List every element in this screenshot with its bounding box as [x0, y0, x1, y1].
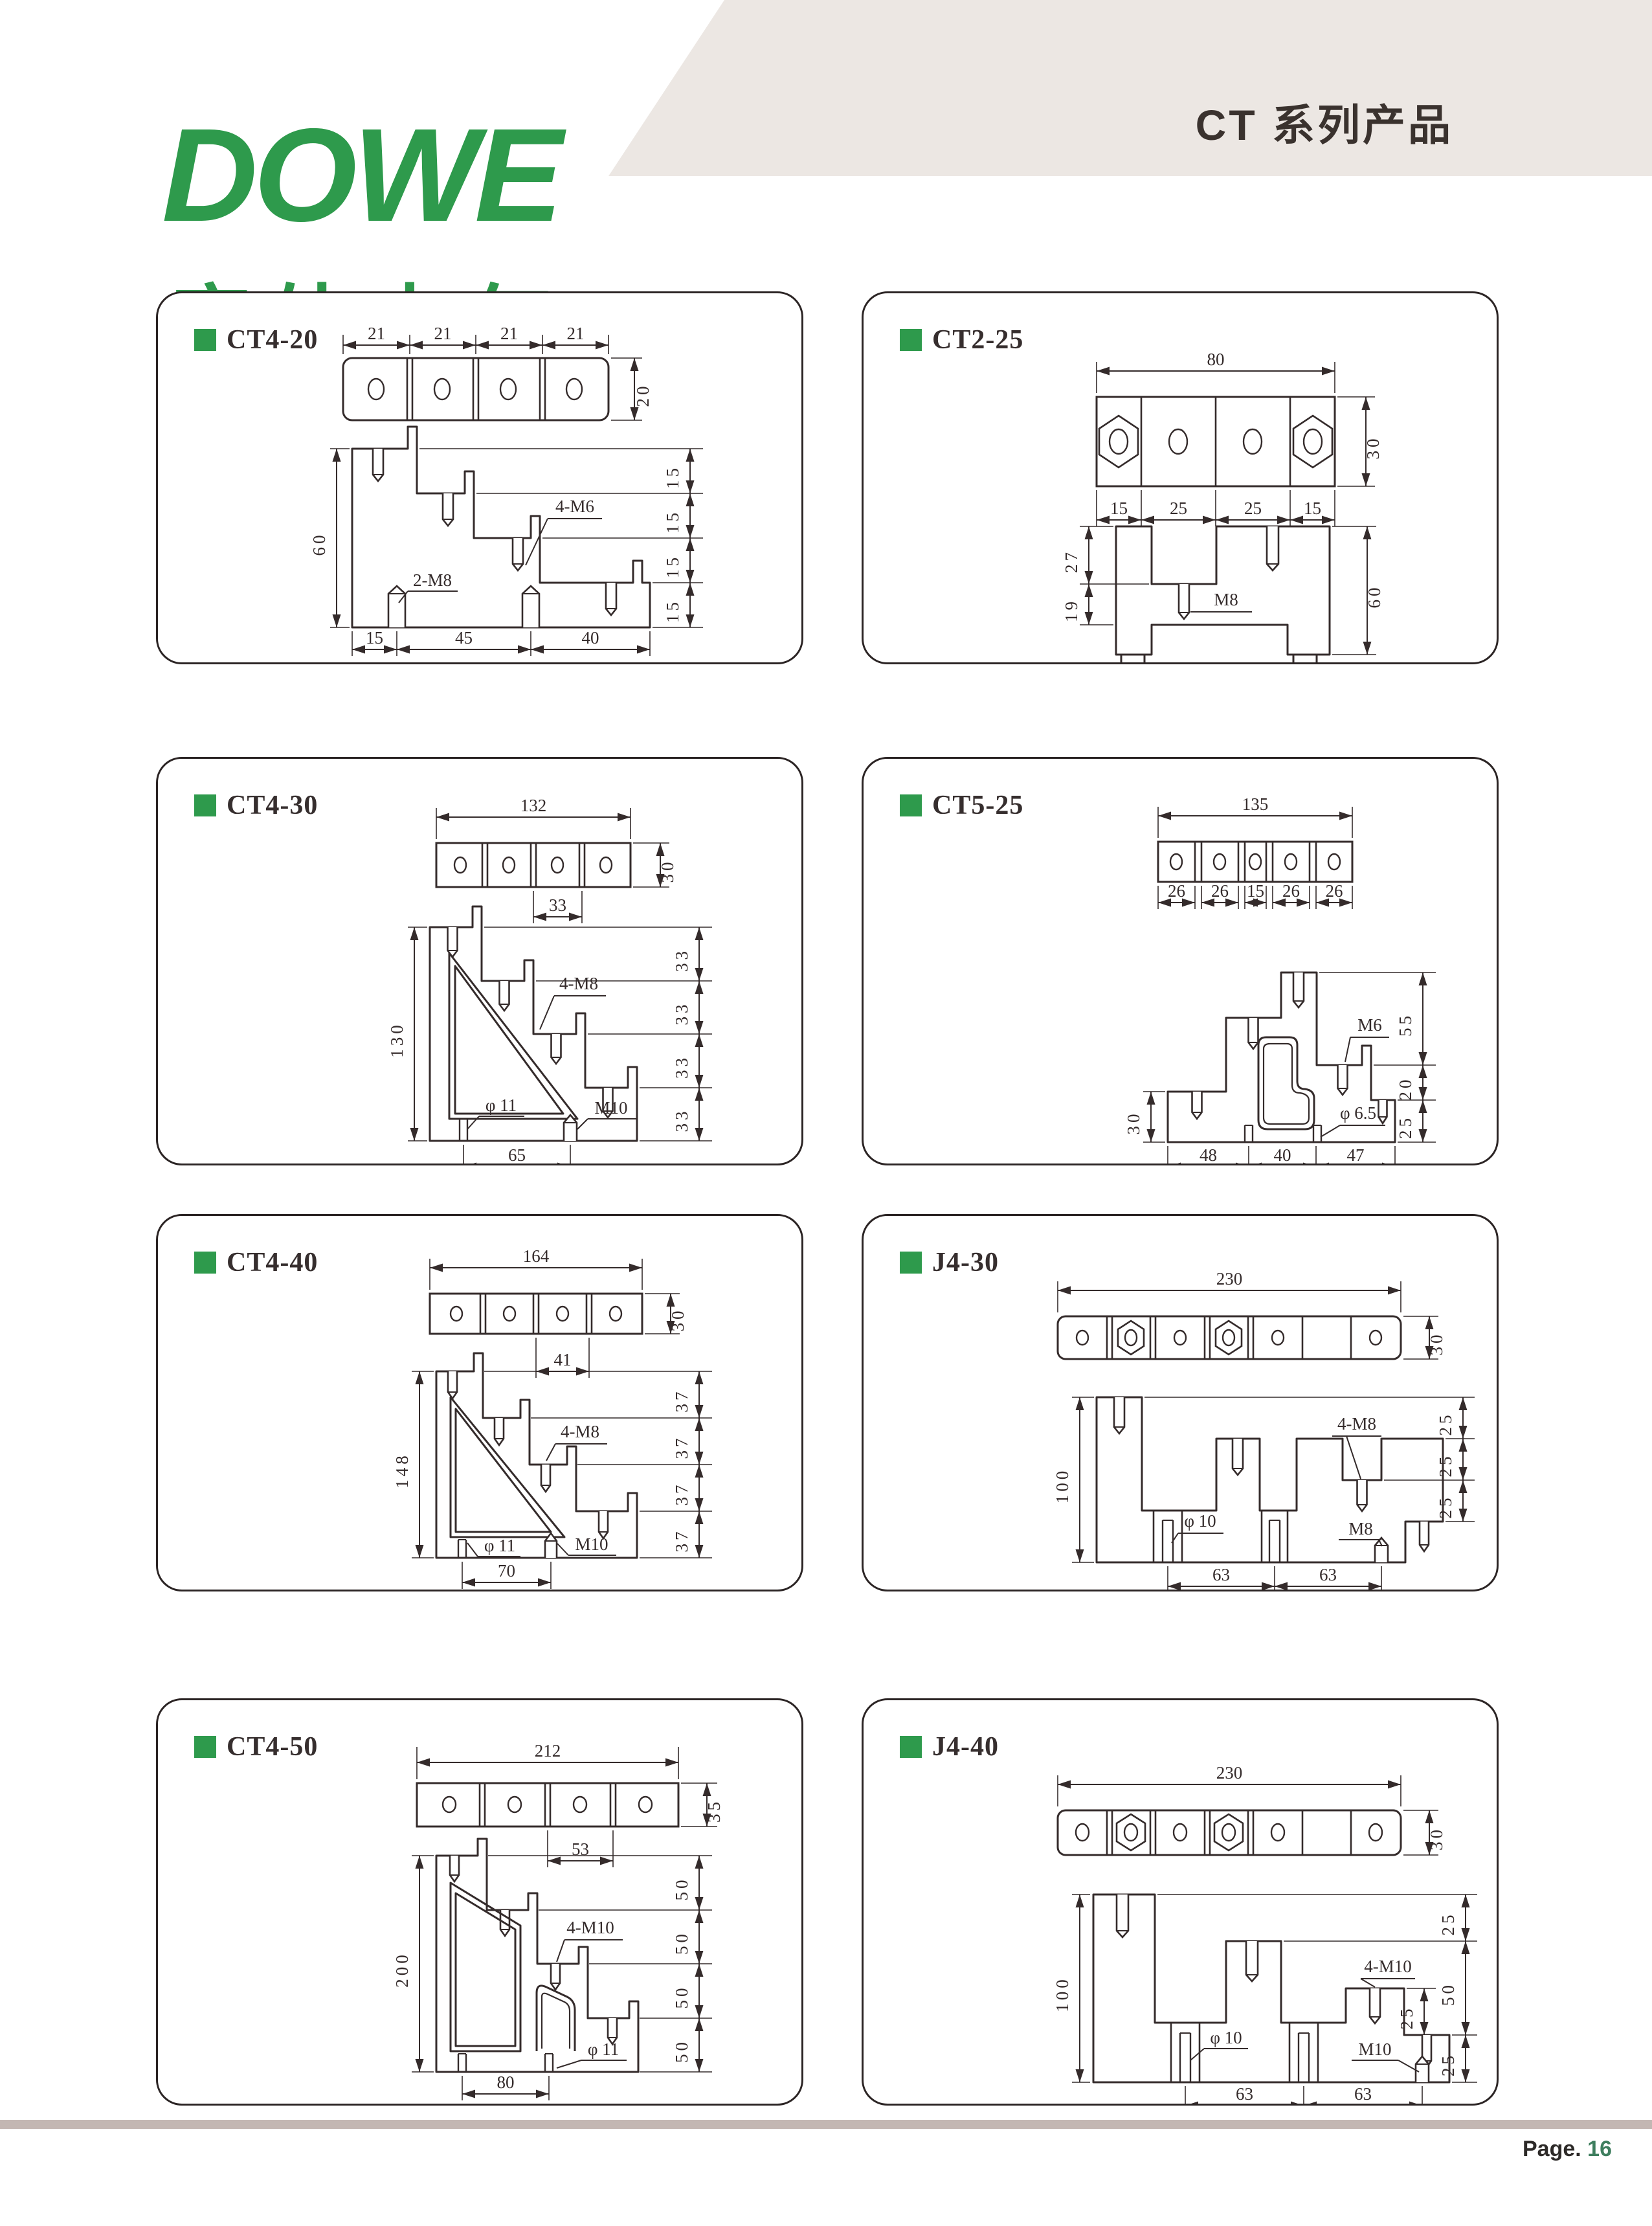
dim-label: 33 — [549, 895, 566, 915]
dim-label: 60 — [309, 532, 329, 556]
dim-label: 27 — [1062, 549, 1081, 573]
dim-label: 15 — [663, 554, 682, 578]
dim-label: 33 — [672, 1055, 691, 1079]
dim-label: M10 — [575, 1535, 608, 1554]
dim-label: M10 — [594, 1098, 627, 1118]
dim-label: 25 — [1436, 1412, 1455, 1436]
dim-label: 35 — [704, 1799, 724, 1823]
panel-j4-40: J4-40 230302510025502563634-M10φ 10M10 — [862, 1698, 1499, 2106]
dim-label: φ 10 — [1210, 2028, 1242, 2047]
dim-label: 37 — [672, 1435, 691, 1459]
dim-label: 15 — [366, 628, 383, 647]
dim-label: 230 — [1216, 1269, 1243, 1288]
dim-label: M10 — [1358, 2040, 1391, 2059]
dim-label: M8 — [1214, 590, 1238, 609]
technical-drawing-ct4-40: 164304114837373737704-M8φ 11M10 — [158, 1216, 801, 1590]
dim-label: 20 — [633, 383, 653, 407]
dim-label: 21 — [434, 324, 452, 343]
dim-label: 2-M8 — [413, 570, 452, 590]
dim-label: 30 — [658, 859, 677, 883]
dim-label: 25 — [1436, 1495, 1455, 1519]
dim-label: 164 — [523, 1246, 550, 1266]
dim-label: 30 — [1427, 1332, 1446, 1356]
dim-label: 50 — [1438, 1982, 1458, 2006]
dim-label: 33 — [672, 948, 691, 972]
dim-label: 26 — [1211, 881, 1229, 901]
dim-label: 25 — [1396, 1115, 1415, 1139]
dim-label: 30 — [668, 1308, 687, 1332]
dim-label: 15 — [663, 465, 682, 489]
panel-ct4-20: CT4-20 212121212060151515151545404-M62-M… — [156, 291, 803, 664]
panel-ct5-25: CT5-25 135262615262630552025484047M6φ 6.… — [862, 757, 1499, 1165]
dim-label: 26 — [1282, 881, 1300, 901]
dim-label: 21 — [567, 324, 585, 343]
dim-label: 25 — [1438, 1912, 1458, 1936]
dim-label: 70 — [498, 1561, 515, 1580]
dim-label: 30 — [1363, 436, 1383, 460]
brand-logo: DOWE — [162, 109, 559, 242]
dim-label: M6 — [1357, 1015, 1382, 1035]
panel-ct2-25: CT2-25 803015252515271960M8 — [862, 291, 1499, 664]
dim-label: 47 — [1347, 1145, 1365, 1164]
dim-label: 37 — [672, 1389, 691, 1413]
dim-label: 200 — [392, 1951, 412, 1988]
dim-label: 30 — [1427, 1827, 1446, 1850]
dim-label: 55 — [1396, 1013, 1415, 1037]
dim-label: 15 — [1247, 881, 1264, 901]
dim-label: 230 — [1216, 1763, 1243, 1782]
page-number-value: 16 — [1587, 2137, 1612, 2161]
dim-label: 15 — [1304, 499, 1321, 518]
footer-divider-bar — [0, 2120, 1652, 2129]
dim-label: 63 — [1319, 1565, 1337, 1584]
dim-label: 4-M8 — [561, 1422, 599, 1441]
dim-label: 135 — [1242, 794, 1269, 814]
dim-label: 63 — [1236, 2084, 1253, 2104]
technical-drawing-j4-40: 230302510025502563634-M10φ 10M10 — [864, 1700, 1497, 2104]
panel-j4-30: J4-30 2303010025252563634-M8φ 10M8 — [862, 1214, 1499, 1591]
dim-label: 37 — [672, 1529, 691, 1553]
technical-drawing-ct5-25: 135262615262630552025484047M6φ 6.5 — [864, 759, 1497, 1164]
dim-label: 33 — [672, 1002, 691, 1026]
panel-ct4-50: CT4-50 212355320050505050804-M10φ 11 — [156, 1698, 803, 2106]
dim-label: M8 — [1348, 1519, 1373, 1538]
dim-label: 15 — [663, 510, 682, 534]
dim-label: 25 — [1436, 1454, 1455, 1478]
dim-label: 41 — [554, 1350, 572, 1369]
dim-label: 45 — [455, 628, 473, 647]
dim-label: 50 — [672, 1877, 691, 1901]
technical-drawing-j4-30: 2303010025252563634-M8φ 10M8 — [864, 1216, 1497, 1590]
dim-label: 100 — [1053, 1468, 1072, 1504]
dim-label: 40 — [582, 628, 599, 647]
dim-label: 25 — [1170, 499, 1187, 518]
dim-label: 132 — [520, 796, 547, 815]
dim-label: 26 — [1326, 881, 1343, 901]
dim-label: 4-M8 — [559, 974, 598, 993]
dim-label: 30 — [1124, 1111, 1143, 1135]
technical-drawing-ct2-25: 803015252515271960M8 — [864, 293, 1497, 662]
panel-ct4-30: CT4-30 132303313033333333654-M8φ 11M10 — [156, 757, 803, 1165]
dim-label: 100 — [1053, 1976, 1072, 2012]
dim-label: 4-M10 — [566, 1918, 614, 1937]
dim-label: 4-M6 — [555, 497, 594, 516]
dim-label: 20 — [1396, 1077, 1415, 1101]
dim-label: 50 — [672, 1931, 691, 1955]
dim-label: 15 — [663, 599, 682, 623]
page-title: CT 系列产品 — [1196, 91, 1453, 153]
page-label: Page. — [1523, 2137, 1581, 2161]
dim-label: 19 — [1062, 598, 1081, 622]
dim-label: 4-M8 — [1337, 1414, 1376, 1433]
catalog-page: DOWE 度外电气 CT 系列产品 CT4-20 212121212060151… — [0, 0, 1652, 2226]
dim-label: 50 — [672, 2039, 691, 2063]
dim-label: 48 — [1200, 1145, 1217, 1164]
dim-label: 25 — [1438, 2052, 1458, 2076]
technical-drawing-ct4-30: 132303313033333333654-M8φ 11M10 — [158, 759, 801, 1164]
dim-label: 80 — [1207, 350, 1225, 369]
dim-label: φ 10 — [1184, 1511, 1216, 1531]
dim-label: 21 — [368, 324, 385, 343]
dim-label: 15 — [1110, 499, 1128, 518]
page-number: Page. 16 — [1523, 2137, 1612, 2162]
dim-label: φ 11 — [484, 1536, 515, 1555]
dim-label: 26 — [1168, 881, 1185, 901]
technical-drawing-ct4-20: 212121212060151515151545404-M62-M8 — [158, 293, 801, 662]
dim-label: 63 — [1354, 2084, 1372, 2104]
dim-label: 4-M10 — [1364, 1957, 1412, 1976]
dim-label: 25 — [1244, 499, 1262, 518]
dim-label: 65 — [508, 1145, 526, 1164]
dim-label: φ 11 — [588, 2040, 619, 2059]
dim-label: 25 — [1397, 2006, 1416, 2030]
dim-label: φ 11 — [486, 1096, 517, 1115]
dim-label: 63 — [1212, 1565, 1230, 1584]
dim-label: 21 — [500, 324, 518, 343]
dim-label: 148 — [392, 1452, 412, 1489]
dim-label: 60 — [1365, 585, 1384, 609]
dim-label: 212 — [535, 1741, 561, 1760]
panel-ct4-40: CT4-40 164304114837373737704-M8φ 11M10 — [156, 1214, 803, 1591]
dim-label: 80 — [497, 2073, 515, 2092]
dim-label: 37 — [672, 1482, 691, 1506]
dim-label: 130 — [387, 1022, 407, 1058]
dim-label: 50 — [672, 1985, 691, 2009]
dim-label: 33 — [672, 1108, 691, 1132]
technical-drawing-ct4-50: 212355320050505050804-M10φ 11 — [158, 1700, 801, 2104]
dim-label: φ 6.5 — [1340, 1103, 1376, 1123]
dim-label: 40 — [1274, 1145, 1291, 1164]
